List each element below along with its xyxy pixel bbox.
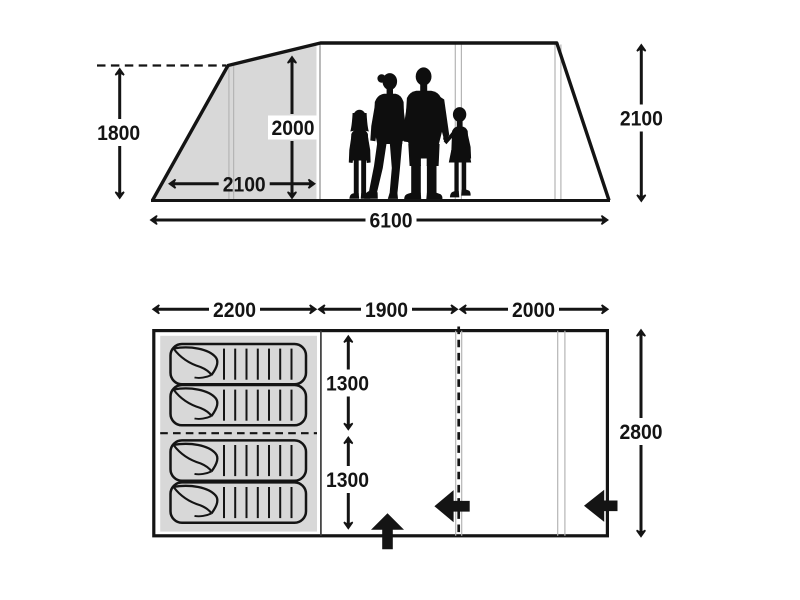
svg-text:6100: 6100 [370,210,413,233]
svg-text:1300: 1300 [326,373,369,396]
svg-text:2000: 2000 [512,299,555,322]
svg-text:1900: 1900 [365,299,408,322]
svg-text:2200: 2200 [213,299,256,322]
svg-text:2100: 2100 [620,108,663,131]
svg-text:1800: 1800 [97,122,140,145]
svg-text:1300: 1300 [326,469,369,492]
svg-text:2800: 2800 [620,421,663,444]
svg-text:2000: 2000 [272,117,315,140]
svg-text:2100: 2100 [223,173,266,196]
